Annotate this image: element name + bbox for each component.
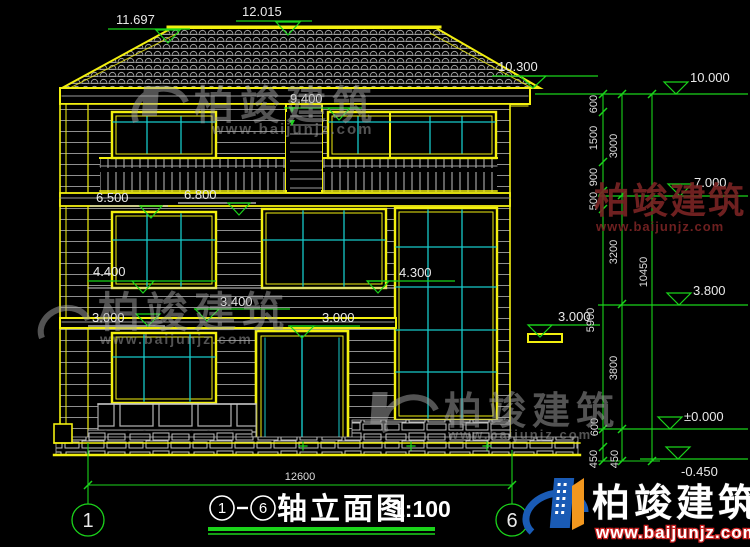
watermark-name: 柏竣建筑 — [594, 180, 746, 221]
level-text: 11.697 — [116, 12, 155, 27]
dim-text: 450 — [609, 450, 621, 468]
stair-window — [395, 208, 497, 420]
window-2f-left — [112, 212, 216, 288]
brand-name: 柏竣建筑 — [592, 483, 750, 525]
watermark-right-maroon: 柏竣建筑 www.baijunjz.com — [594, 180, 746, 234]
drawing-canvas: 11.697 12.015 10.300 9.400 6.500 6.800 — [0, 0, 750, 547]
watermark-url: www.baijunjz.com — [447, 427, 592, 442]
watermark-name: 柏竣建筑 — [98, 289, 290, 336]
dim-text: 3000 — [608, 134, 620, 158]
level-text: 4.300 — [399, 265, 432, 280]
axis-number: 1 — [82, 510, 93, 532]
right-canopy-slab — [528, 334, 562, 342]
level-text: -0.450 — [681, 464, 718, 479]
dim-text: 450 — [588, 450, 600, 468]
title-name: 轴立面图 — [277, 492, 409, 526]
brand-url: www.baijunjz.com — [595, 523, 750, 542]
dim-text: 3200 — [608, 240, 620, 264]
level-text: 12.015 — [242, 4, 282, 19]
axis-number: 6 — [506, 510, 517, 532]
entry-door — [256, 331, 348, 439]
brand-logo-accent-icon — [572, 478, 584, 530]
title-underline — [208, 527, 435, 531]
cad-elevation-drawing: 11.697 12.015 10.300 9.400 6.500 6.800 — [0, 0, 750, 547]
watermark-url: www.baijunjz.com — [99, 331, 253, 347]
level-text: ±0.000 — [684, 409, 724, 424]
level-text: 6.500 — [96, 190, 129, 205]
dim-text: 3800 — [608, 356, 620, 380]
level-text: 10.300 — [498, 59, 538, 74]
title-axis-start: 1 — [218, 500, 226, 517]
dim-width-text: 12600 — [285, 471, 316, 483]
level-text: 10.000 — [690, 70, 730, 85]
left-pier — [54, 424, 72, 443]
level-text: 3.800 — [693, 283, 726, 298]
title-axis-end: 6 — [259, 500, 267, 517]
level-text: 3.000 — [322, 310, 355, 325]
level-text: 6.800 — [184, 187, 217, 202]
dim-text: 1500 — [588, 126, 600, 150]
dim-text: 600 — [588, 95, 600, 113]
title-scale: 1:100 — [392, 496, 451, 522]
dim-text: 5900 — [585, 308, 597, 332]
level-text: 4.400 — [93, 264, 126, 279]
watermark-url: www.baijunjz.com — [595, 219, 724, 234]
watermark-url: www.baijunjz.com — [211, 121, 373, 138]
window-2f-middle — [262, 209, 386, 288]
dim-total-right: 10450 — [638, 257, 650, 288]
